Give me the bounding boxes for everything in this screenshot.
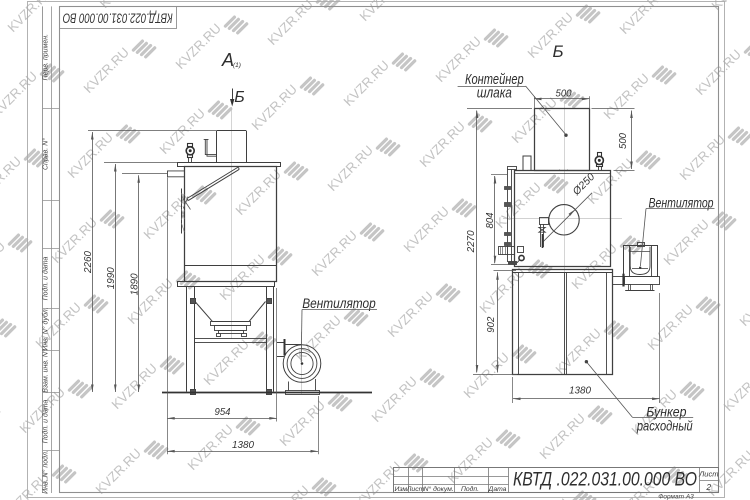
svg-text:Инв. N° дубл.: Инв. N° дубл. (42, 307, 50, 350)
svg-text:Подп. и дата: Подп. и дата (42, 256, 50, 300)
svg-text:расходный: расходный (636, 417, 693, 433)
svg-text:500: 500 (556, 87, 572, 99)
svg-text:1380: 1380 (232, 439, 254, 451)
svg-text:Дата: Дата (488, 486, 507, 493)
svg-text:Б: Б (234, 89, 244, 106)
svg-text:902: 902 (485, 317, 497, 333)
svg-text:Вентилятор: Вентилятор (649, 194, 714, 210)
svg-text:Лист: Лист (406, 486, 425, 493)
svg-text:КВТД.022.031.00.000 ВО: КВТД.022.031.00.000 ВО (63, 11, 173, 27)
svg-text:Подп. и дата: Подп. и дата (42, 399, 50, 443)
svg-text:2260: 2260 (82, 251, 94, 274)
svg-text:(1): (1) (233, 62, 241, 69)
svg-text:Перв. примен.: Перв. примен. (43, 34, 50, 81)
svg-text:Взам. инв. N°: Взам. инв. N° (42, 349, 50, 393)
svg-text:2: 2 (705, 482, 711, 492)
svg-text:1890: 1890 (129, 273, 141, 295)
svg-text:1380: 1380 (569, 385, 591, 397)
svg-text:804: 804 (484, 212, 496, 228)
svg-text:Изм: Изм (394, 486, 407, 493)
svg-text:Подп.: Подп. (461, 485, 479, 493)
svg-text:954: 954 (215, 406, 231, 418)
svg-text:1990: 1990 (105, 267, 117, 289)
svg-text:Лист: Лист (698, 470, 718, 479)
svg-text:Вентилятор: Вентилятор (302, 296, 376, 311)
svg-text:Справ. N°: Справ. N° (42, 138, 50, 170)
svg-text:Инв. N° подл.: Инв. N° подл. (42, 450, 50, 494)
svg-text:N° докум.: N° докум. (424, 485, 454, 493)
svg-text:Б: Б (552, 42, 563, 61)
svg-text:Формат А3: Формат А3 (658, 494, 694, 500)
svg-text:500: 500 (617, 133, 629, 149)
svg-text:2270: 2270 (465, 230, 477, 253)
svg-text:КВТД .022.031.00.000 ВО: КВТД .022.031.00.000 ВО (513, 470, 697, 491)
svg-text:шлака: шлака (477, 85, 512, 101)
